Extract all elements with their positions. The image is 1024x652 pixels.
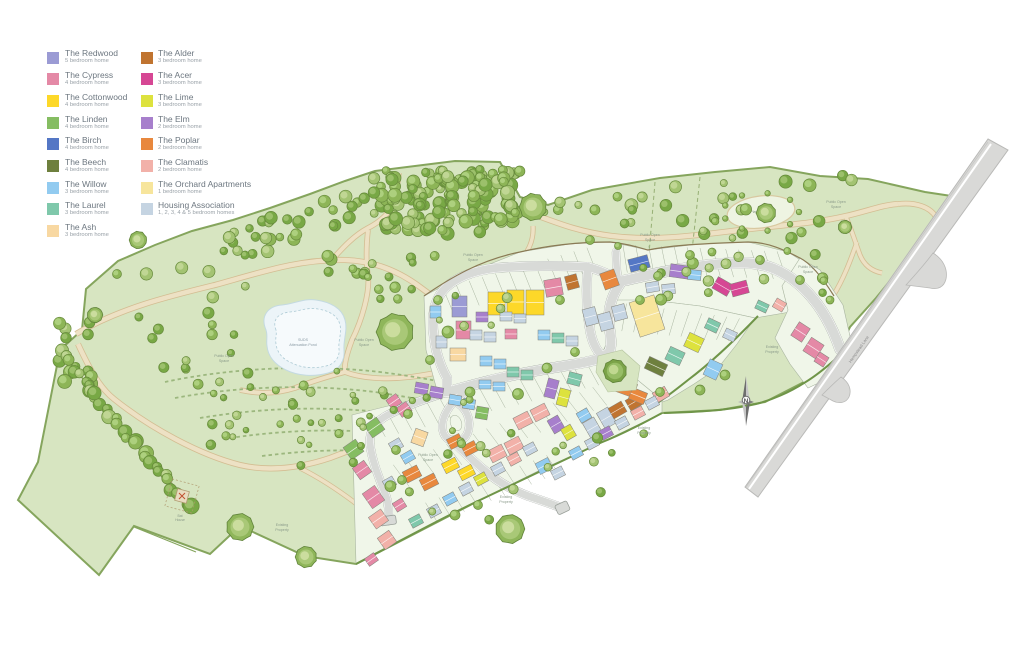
svg-text:Space: Space (645, 238, 655, 242)
svg-text:Space: Space (359, 343, 369, 347)
svg-text:Space: Space (803, 270, 813, 274)
svg-text:Property: Property (637, 431, 651, 435)
svg-text:House: House (175, 518, 185, 522)
svg-text:Public Open: Public Open (640, 233, 660, 237)
svg-text:Property: Property (765, 350, 779, 354)
svg-text:Property: Property (499, 500, 513, 504)
svg-text:Public Open: Public Open (214, 354, 234, 358)
svg-text:Existing: Existing (276, 523, 289, 527)
svg-text:Space: Space (423, 458, 433, 462)
svg-text:Existing: Existing (500, 495, 513, 499)
svg-text:Space: Space (219, 359, 229, 363)
svg-text:Existing: Existing (638, 426, 651, 430)
svg-text:Existing: Existing (766, 345, 779, 349)
svg-text:Public Open: Public Open (418, 453, 438, 457)
svg-text:Public Open: Public Open (354, 338, 374, 342)
svg-text:Public Open: Public Open (798, 265, 818, 269)
svg-text:Space: Space (468, 258, 478, 262)
svg-text:Space: Space (831, 205, 841, 209)
svg-text:Attenuation Pond: Attenuation Pond (289, 343, 317, 347)
svg-text:Property: Property (275, 528, 289, 532)
svg-text:SUDS: SUDS (298, 338, 309, 342)
svg-text:Public Open: Public Open (826, 200, 846, 204)
svg-text:N: N (744, 398, 749, 405)
svg-text:Public Open: Public Open (463, 253, 483, 257)
